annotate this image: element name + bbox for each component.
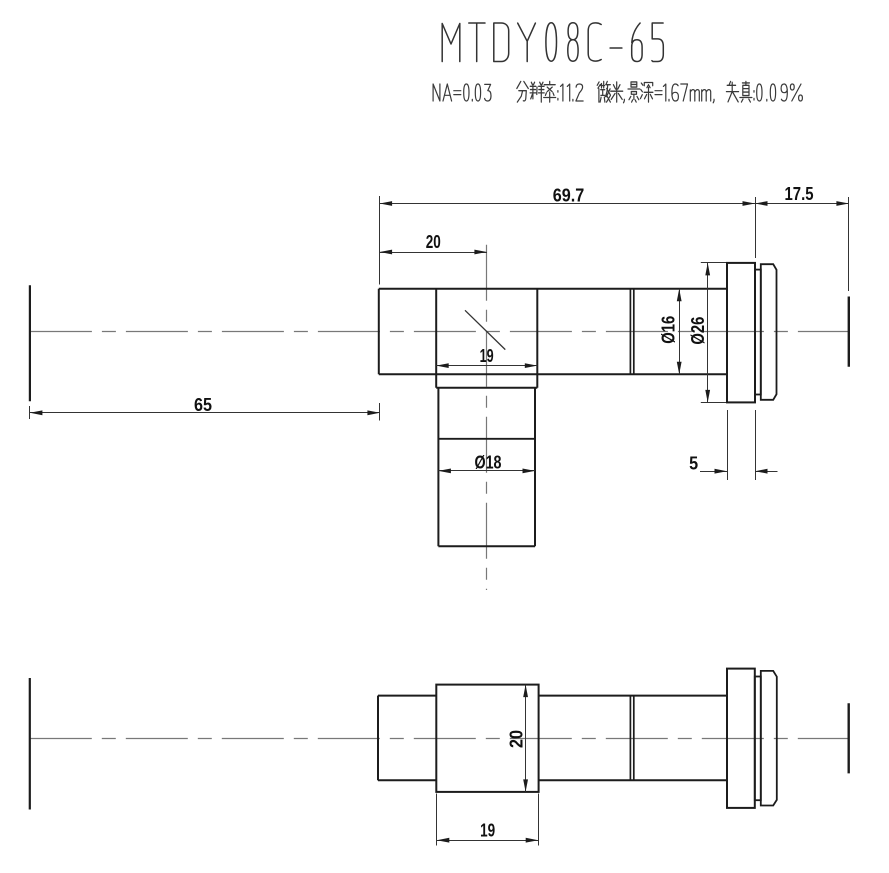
- svg-text:19: 19: [480, 820, 495, 841]
- svg-text:Ø18: Ø18: [475, 452, 502, 473]
- svg-text:65: 65: [194, 394, 212, 415]
- svg-text:Ø16: Ø16: [658, 316, 679, 344]
- svg-text:Ø26: Ø26: [687, 317, 708, 345]
- svg-text:17.5: 17.5: [785, 183, 814, 204]
- svg-text:5: 5: [689, 452, 698, 473]
- svg-text:19: 19: [480, 345, 494, 366]
- svg-text:20: 20: [426, 231, 441, 252]
- svg-text:69.7: 69.7: [553, 184, 585, 205]
- svg-text:20: 20: [506, 730, 527, 748]
